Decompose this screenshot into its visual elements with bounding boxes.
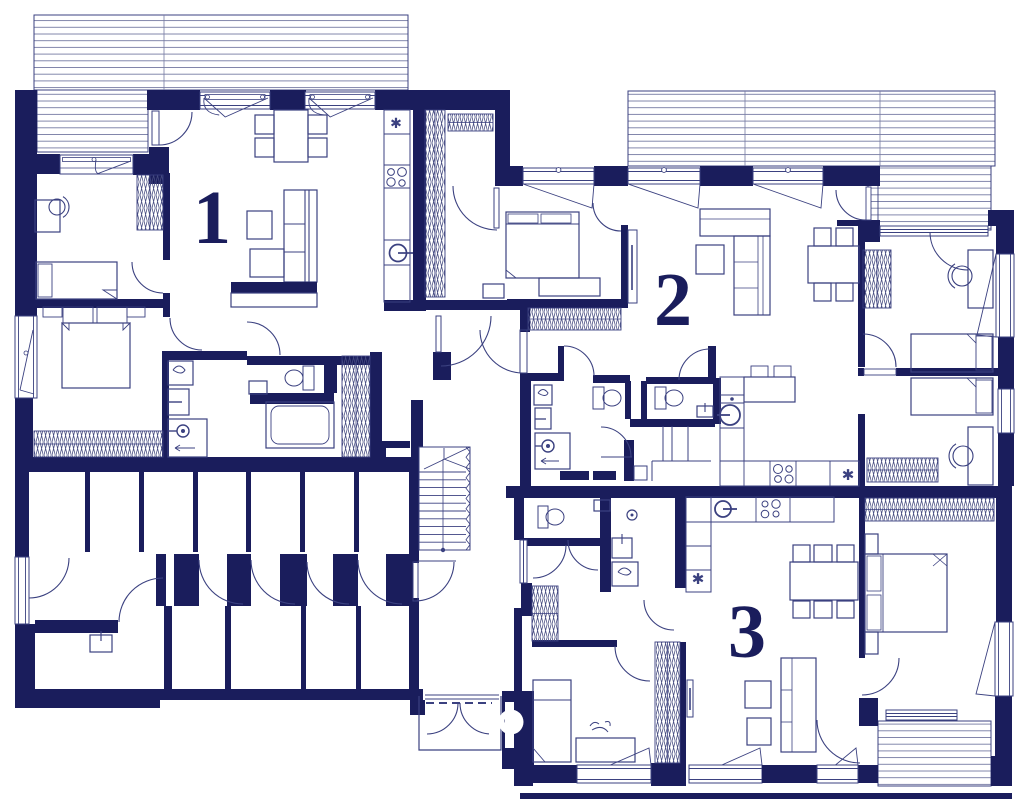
svg-text:1: 1 bbox=[193, 176, 231, 260]
svg-text:2: 2 bbox=[654, 258, 692, 342]
svg-text:3: 3 bbox=[728, 590, 766, 674]
svg-text:✱: ✱ bbox=[842, 467, 855, 484]
svg-text:✱: ✱ bbox=[390, 115, 402, 131]
svg-text:✱: ✱ bbox=[692, 571, 705, 588]
